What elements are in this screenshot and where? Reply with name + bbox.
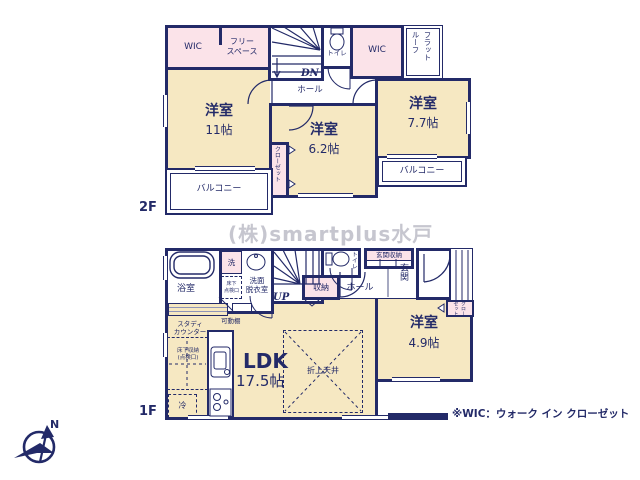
f2-bedroom-77-size: 7.7帖 [395, 115, 451, 131]
f1-closet-label: クロー ゼット [451, 301, 466, 316]
compass-icon: N [10, 412, 72, 476]
f2-wic-right-label: WIC [358, 42, 396, 58]
f1-hall-label: ホール [338, 281, 382, 295]
f2-flat-roof-label: フラット ルーフ [409, 31, 433, 75]
f1-study-counter-label: スタディ カウンター [166, 318, 214, 340]
f1-floor-label: 1F [139, 404, 157, 420]
f2-free-space-label: フリー スペース [216, 31, 268, 63]
f1-porch [416, 248, 452, 300]
f2-stairs-dn-label: DN [301, 68, 319, 80]
f2-bedroom-77-name: 洋室 [395, 96, 451, 114]
f2-bedroom-62-size: 6.2帖 [296, 141, 352, 157]
f1-ldk-size: 17.5帖 [236, 372, 284, 390]
f2-closet-label: クローゼット [273, 146, 280, 196]
f2-hall-label: ホール [288, 83, 332, 97]
f1-movable-shelf-label: 可動棚 [221, 318, 241, 326]
f1-raised-ceiling-label: 折上天井 [295, 364, 351, 378]
f1-washroom-label: 洗面 脱衣室 [240, 271, 274, 299]
f2-window-room77-right [466, 102, 471, 134]
f1-entrance-label: 玄関 [397, 263, 408, 297]
f2-toilet-room [321, 25, 353, 69]
f1-bath-label: 浴室 [177, 284, 195, 295]
f1-floor-storage-label: 床下収納 (点検口) [170, 345, 206, 365]
f2-window-room11-balcony [195, 166, 255, 171]
f1-study-counter-top [168, 303, 228, 316]
f2-wic-left-label: WIC [170, 38, 216, 56]
f1-window-bedroom-bottom [392, 377, 440, 382]
f1-fridge-label: 冷 [168, 396, 197, 416]
f2-balcony-left-label: バルコニー [189, 182, 249, 196]
f2-bedroom-62-name: 洋室 [296, 122, 352, 140]
f1-bedroom-49-size: 4.9帖 [394, 335, 454, 351]
f2-window-room11-left [163, 95, 168, 127]
f1-storage-label: 収納 [302, 277, 340, 298]
f1-stairs-up-label: UP [273, 292, 289, 304]
f1-kitchen-counter [207, 330, 234, 418]
f1-window-ldk-bottom-right [342, 415, 388, 420]
f2-toilet-label: トイレ [324, 48, 350, 60]
floorplan-page: { "colors":{"wall":"#232a68","room_tan":… [0, 0, 640, 480]
f2-window-room62 [298, 193, 353, 198]
f1-window-bath-left [163, 256, 168, 280]
f1-toilet-label: トイレ [350, 251, 357, 276]
f1-laundry-label: 洗 [221, 251, 242, 274]
f1-bedroom-49-name: 洋室 [394, 315, 454, 333]
compass-north-label: N [50, 418, 59, 431]
f2-bedroom-11-size: 11帖 [179, 122, 259, 138]
f1-movable-shelf-strip [232, 303, 252, 312]
f1-entrance-storage-label: 玄関収納 [367, 251, 411, 261]
f2-balcony-right-label: バルコニー [392, 164, 452, 178]
watermark: (株)smartplus水戸 [228, 222, 433, 246]
f2-window-room77-balcony [387, 154, 437, 159]
wic-footnote: ※WIC：ウォーク イン クローゼット [452, 408, 629, 421]
f2-bedroom-11-name: 洋室 [179, 103, 259, 121]
f1-ldk-name: LDK [243, 349, 288, 373]
f1-wall-bottom-thick [388, 413, 448, 420]
f2-floor-label: 2F [139, 200, 157, 216]
f1-entry-steps [450, 248, 473, 303]
f1-floor-access-label: 床下 点検口 [221, 276, 242, 299]
